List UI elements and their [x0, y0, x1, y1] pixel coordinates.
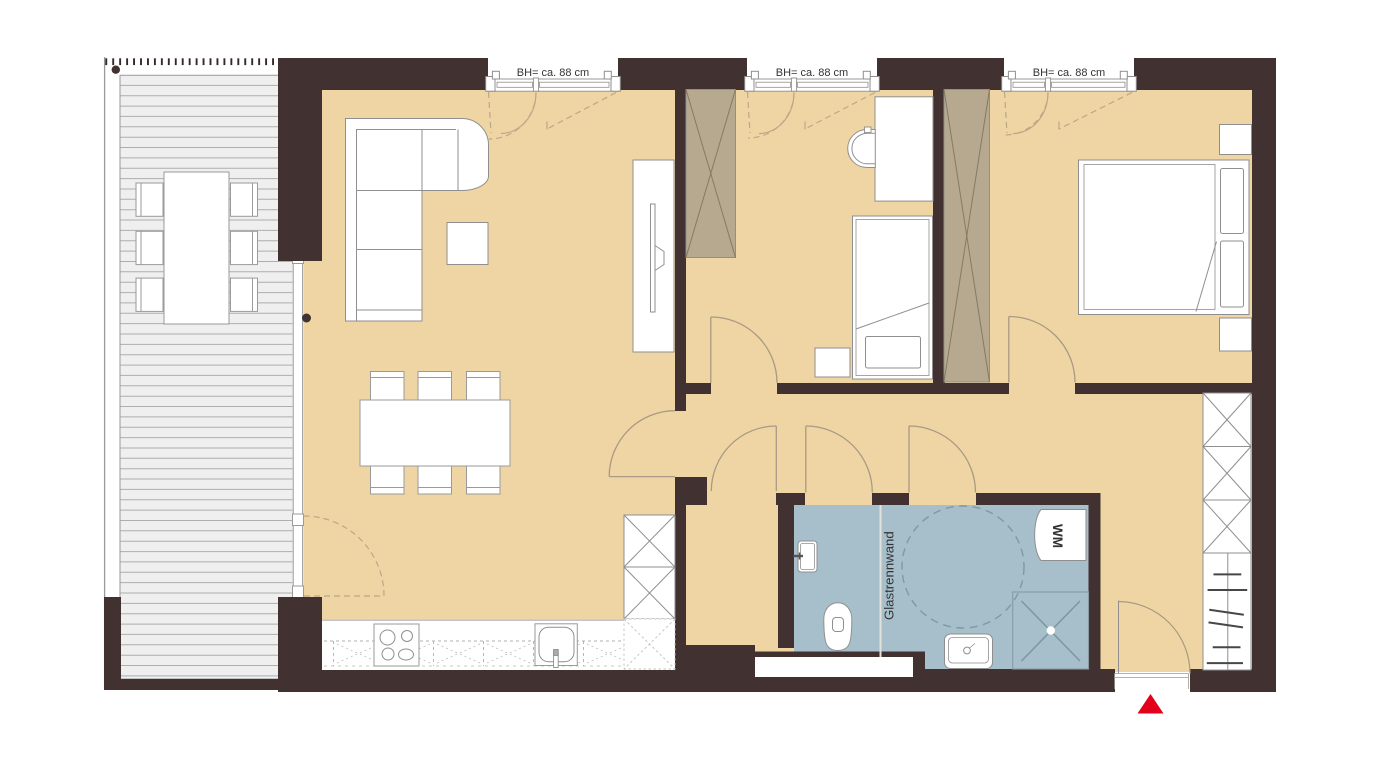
svg-text:BH= ca. 88 cm: BH= ca. 88 cm	[776, 67, 848, 79]
svg-text:WM: WM	[1050, 524, 1065, 548]
svg-text:BH= ca. 88 cm: BH= ca. 88 cm	[517, 67, 589, 79]
svg-text:BH= ca. 88 cm: BH= ca. 88 cm	[1033, 67, 1105, 79]
svg-text:Glastrennwand: Glastrennwand	[882, 531, 897, 620]
